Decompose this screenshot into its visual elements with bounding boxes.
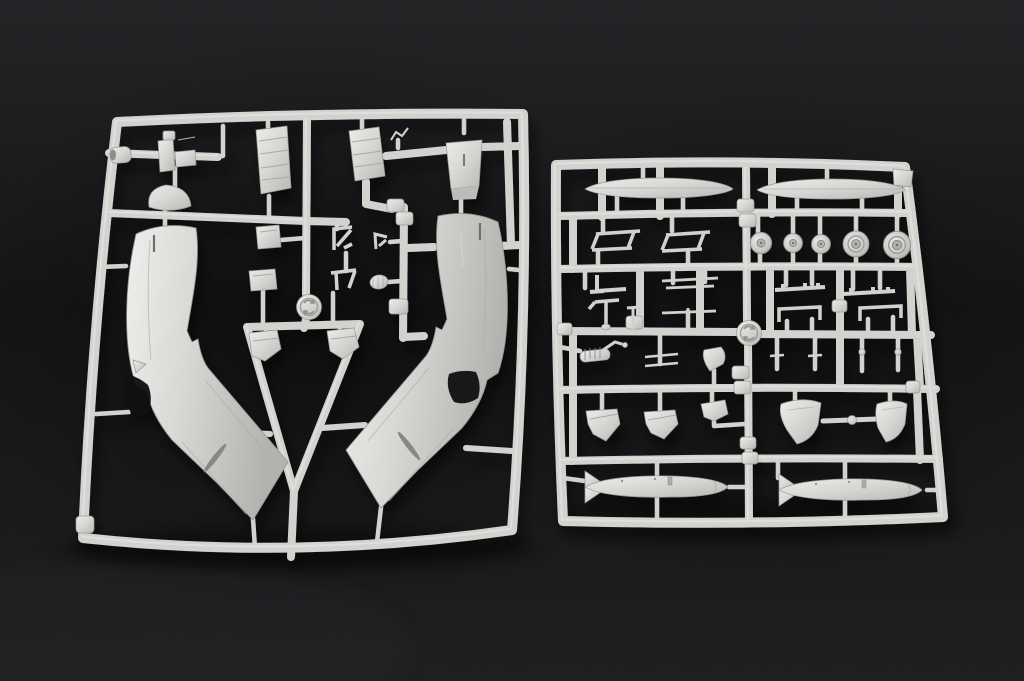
photo-grain <box>0 0 1024 681</box>
photo-canvas <box>0 0 1024 681</box>
sprue-photo <box>0 0 1024 681</box>
